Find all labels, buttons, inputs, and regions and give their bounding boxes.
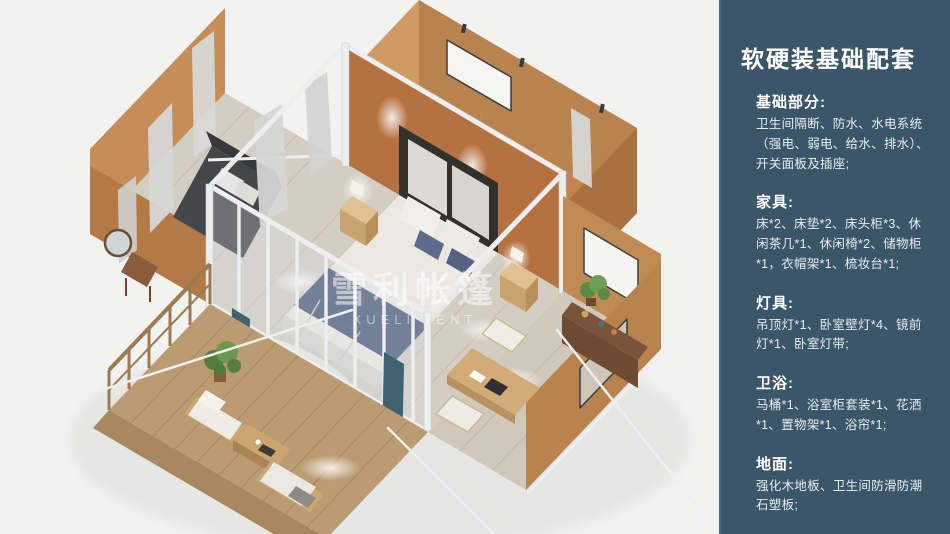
section-flooring: 地面: 强化木地板、卫生间防滑防潮石塑板; <box>756 453 934 517</box>
section-bathroom: 卫浴: 马桶*1、浴室柜套装*1、花洒*1、置物架*1、浴帘*1; <box>756 372 934 436</box>
watermark: 雪利帐篷 XUELI TENT <box>331 269 499 327</box>
post-n <box>342 43 349 166</box>
section-basics-heading: 基础部分: <box>756 91 934 112</box>
section-bathroom-body: 马桶*1、浴室柜套装*1、花洒*1、置物架*1、浴帘*1; <box>756 396 934 436</box>
watermark-cn: 雪利帐篷 <box>331 269 499 310</box>
watermark-en: XUELI TENT <box>353 312 478 327</box>
deck-light-glow <box>300 455 360 481</box>
section-basics: 基础部分: 卫生间隔断、防水、水电系统（强电、弱电、给水、排水）、开关面板及插座… <box>756 91 934 174</box>
panel-title: 软硬装基础配套 <box>741 40 936 74</box>
bathroom-curtain <box>571 108 592 188</box>
section-basics-body: 卫生间隔断、防水、水电系统（强电、弱电、给水、排水）、开关面板及插座; <box>756 115 934 174</box>
floorplan-render: 雪利帐篷 XUELI TENT <box>0 0 719 534</box>
section-furniture-heading: 家具: <box>756 191 934 212</box>
section-lighting: 灯具: 吊顶灯*1、卧室壁灯*4、镜前灯*1、卧室灯带; <box>756 292 934 356</box>
section-bathroom-heading: 卫浴: <box>756 372 934 393</box>
decor-bowl <box>582 311 589 318</box>
section-flooring-body: 强化木地板、卫生间防滑防潮石塑板; <box>756 477 934 517</box>
section-furniture-body: 床*2、床垫*2、床头柜*3、休闲茶几*1、休闲椅*2、储物柜*1，衣帽架*1、… <box>756 215 934 274</box>
cup <box>256 440 261 445</box>
post-s <box>424 312 431 435</box>
round-mirror <box>105 230 131 256</box>
section-lighting-heading: 灯具: <box>756 292 934 313</box>
decor-pot <box>611 329 617 335</box>
section-lighting-body: 吊顶灯*1、卧室壁灯*4、镜前灯*1、卧室灯带; <box>756 316 934 356</box>
panel-sections: 基础部分: 卫生间隔断、防水、水电系统（强电、弱电、给水、排水）、开关面板及插座… <box>741 91 936 516</box>
decor-vase <box>598 321 604 327</box>
section-furniture: 家具: 床*2、床垫*2、床头柜*3、休闲茶几*1、休闲椅*2、储物柜*1，衣帽… <box>756 191 934 274</box>
info-panel: 软硬装基础配套 基础部分: 卫生间隔断、防水、水电系统（强电、弱电、给水、排水）… <box>719 0 950 534</box>
section-flooring-heading: 地面: <box>756 453 934 474</box>
